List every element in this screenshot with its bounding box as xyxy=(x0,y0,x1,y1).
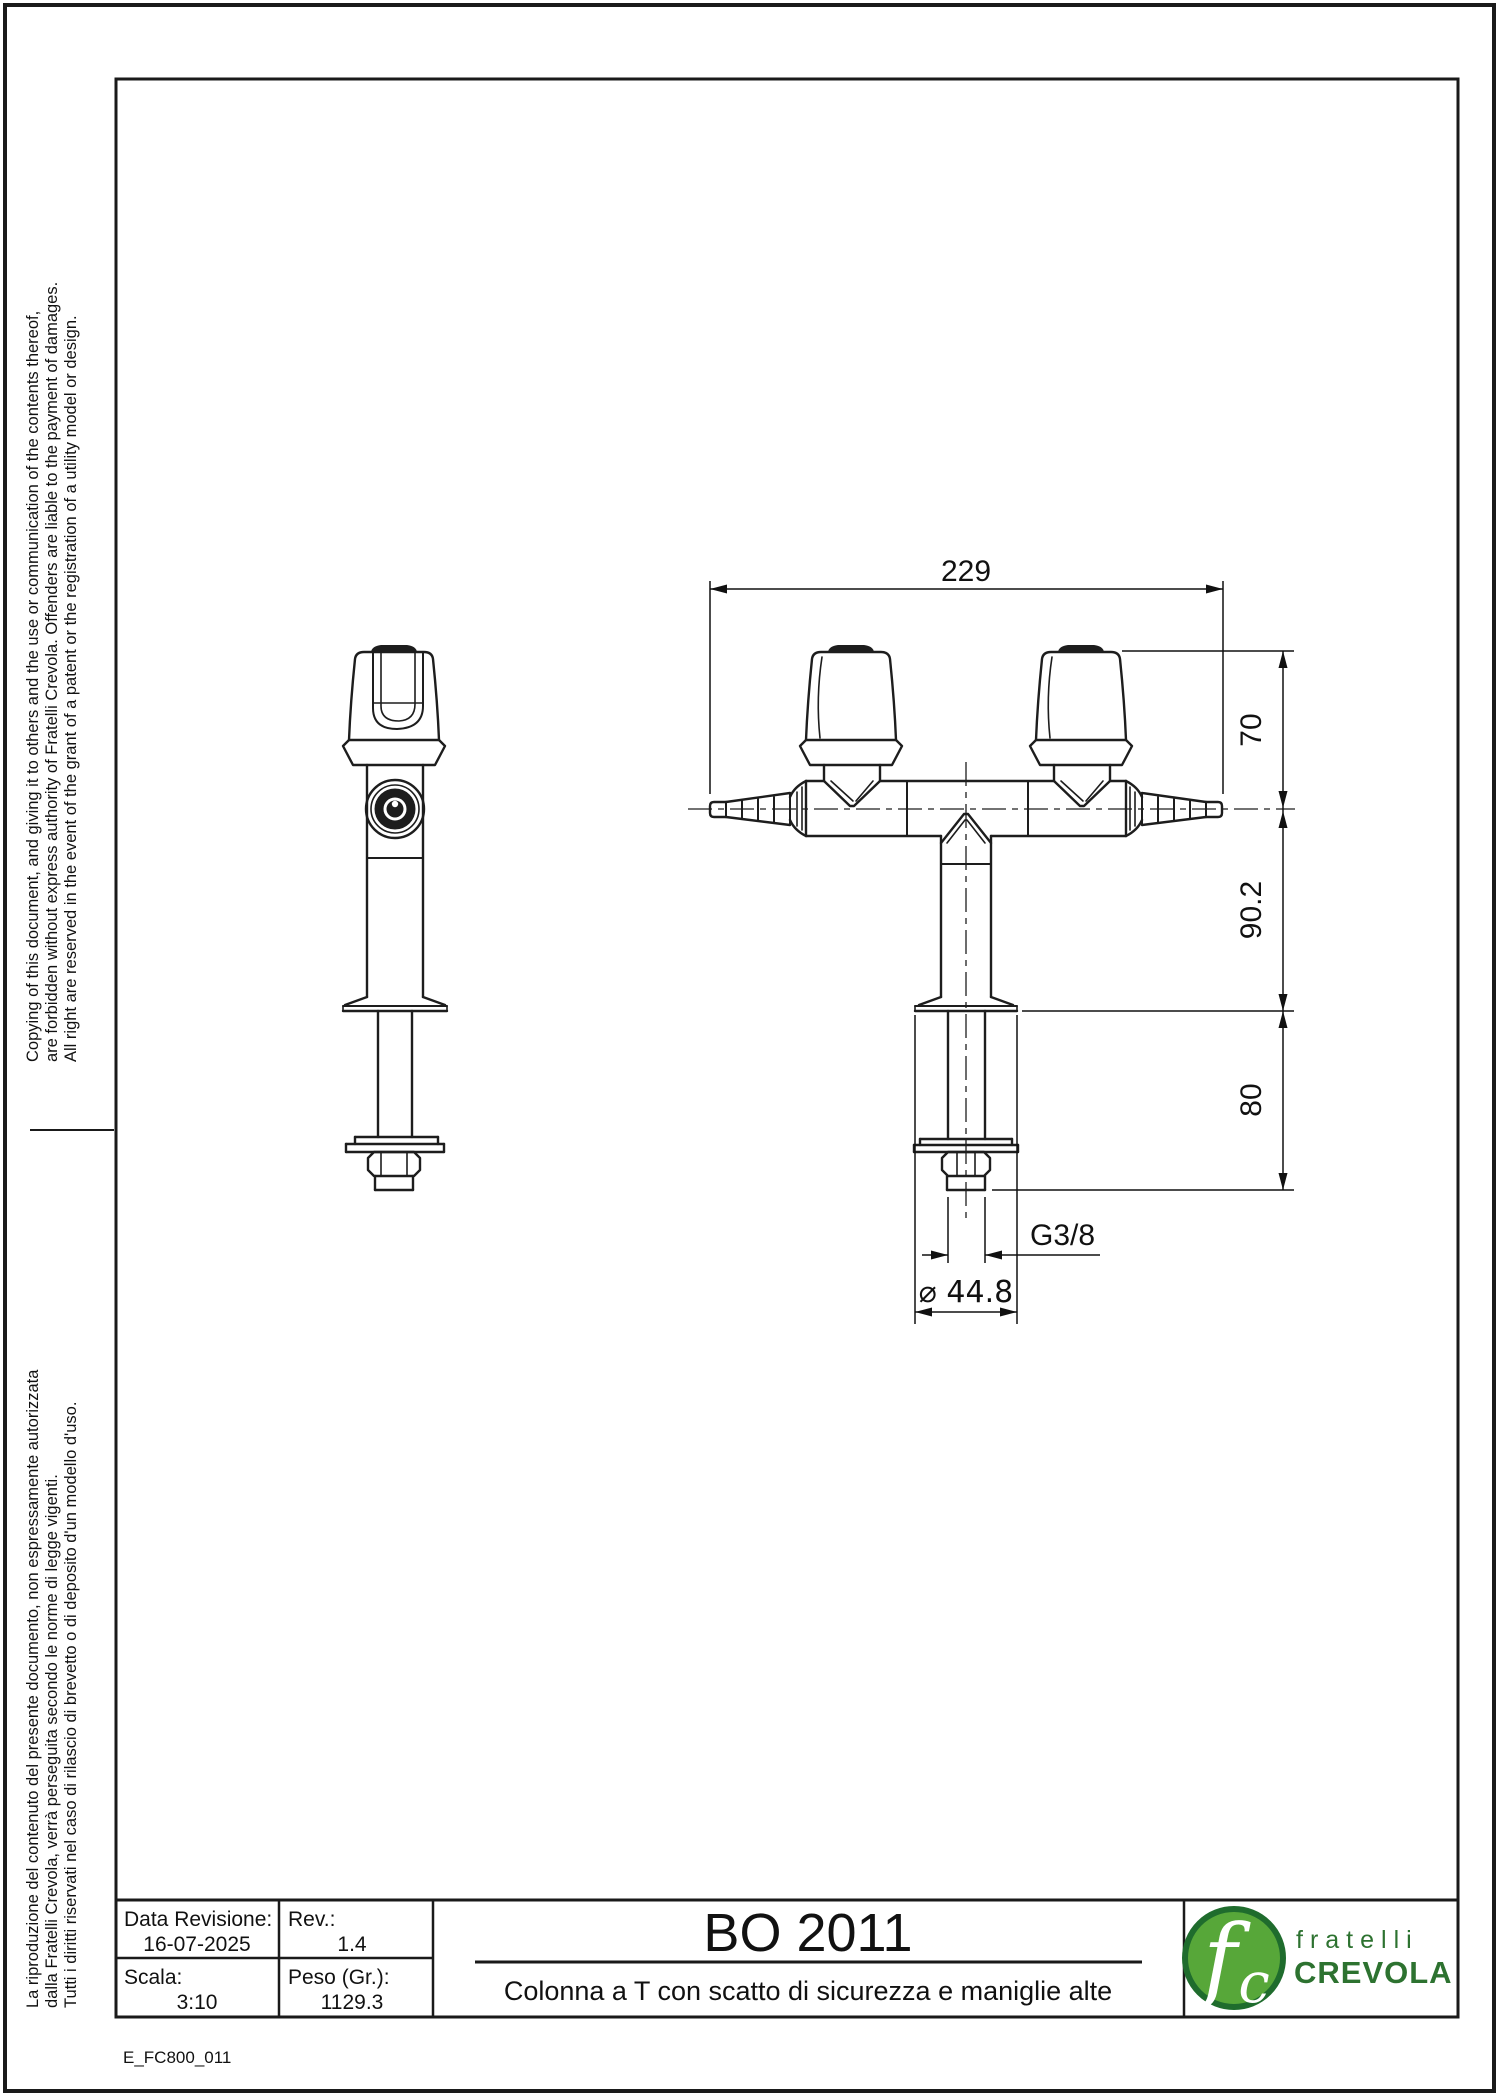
dim-label-70: 70 xyxy=(1235,713,1268,746)
legal-en-line1: Copying of this document, and giving it … xyxy=(24,311,42,1062)
legal-notice-it: La riproduzione del contenuto del presen… xyxy=(24,1369,80,2008)
weight-label: Peso (Gr.): xyxy=(288,1966,390,1989)
logo-monogram-c: c xyxy=(1238,1951,1269,2016)
dim-label-229: 229 xyxy=(941,555,991,588)
weight-value: 1129.3 xyxy=(321,1991,384,2014)
dim-thread: G3/8 xyxy=(922,1197,1100,1263)
legal-it-line2: dalla Fratelli Crevola, verrà perseguita… xyxy=(43,1474,61,2008)
logo-text-fratelli: fratelli xyxy=(1296,1926,1419,1954)
scale-label: Scala: xyxy=(124,1966,182,1989)
page-borders xyxy=(5,5,1494,2091)
side-handle xyxy=(343,645,445,765)
legal-en-line2: are forbidden without express authority … xyxy=(43,282,61,1062)
legal-en-line3: All right are reserved in the event of t… xyxy=(62,315,80,1062)
dim-label-diameter: ⌀ 44.8 xyxy=(919,1275,1013,1310)
handle-top-cap xyxy=(828,645,874,652)
dim-label-90-2: 90.2 xyxy=(1235,881,1268,939)
legal-it-line3: Tutti i diritti riservati nel caso di ri… xyxy=(62,1402,80,2008)
dim-label-g38: G3/8 xyxy=(1030,1219,1095,1252)
rev-value: 1.4 xyxy=(337,1933,367,1956)
scale-value: 3:10 xyxy=(177,1991,218,2014)
title-block: Data Revisione: 16-07-2025 Rev.: 1.4 Sca… xyxy=(116,1900,1458,2017)
document-code: E_FC800_011 xyxy=(123,2048,231,2067)
drawing-sheet: Copying of this document, and giving it … xyxy=(0,0,1500,2097)
side-view xyxy=(343,645,447,1190)
dim-width-total: 229 xyxy=(710,555,1223,794)
front-view xyxy=(688,645,1295,1218)
side-shank xyxy=(343,997,447,1190)
rev-date-value: 16-07-2025 xyxy=(143,1933,250,1956)
rev-date-label: Data Revisione: xyxy=(124,1908,272,1931)
legal-it-line1: La riproduzione del contenuto del presen… xyxy=(24,1369,42,2008)
rev-label: Rev.: xyxy=(288,1908,335,1931)
company-logo: f c fratelli CREVOLA xyxy=(1185,1905,1453,2016)
dim-label-80: 80 xyxy=(1235,1083,1268,1116)
dimensions: 229 70 90.2 80 G3/8 xyxy=(710,555,1294,1324)
drawing-number: BO 2011 xyxy=(703,1903,912,1963)
outlet-port xyxy=(366,780,424,838)
side-column xyxy=(366,765,424,997)
logo-text-crevola: CREVOLA xyxy=(1294,1955,1453,1990)
handle-top-cap xyxy=(371,645,417,652)
legal-notice-en: Copying of this document, and giving it … xyxy=(24,282,80,1062)
handle-top-cap xyxy=(1058,645,1104,652)
drawing-description: Colonna a T con scatto di sicurezza e ma… xyxy=(504,1976,1112,2006)
